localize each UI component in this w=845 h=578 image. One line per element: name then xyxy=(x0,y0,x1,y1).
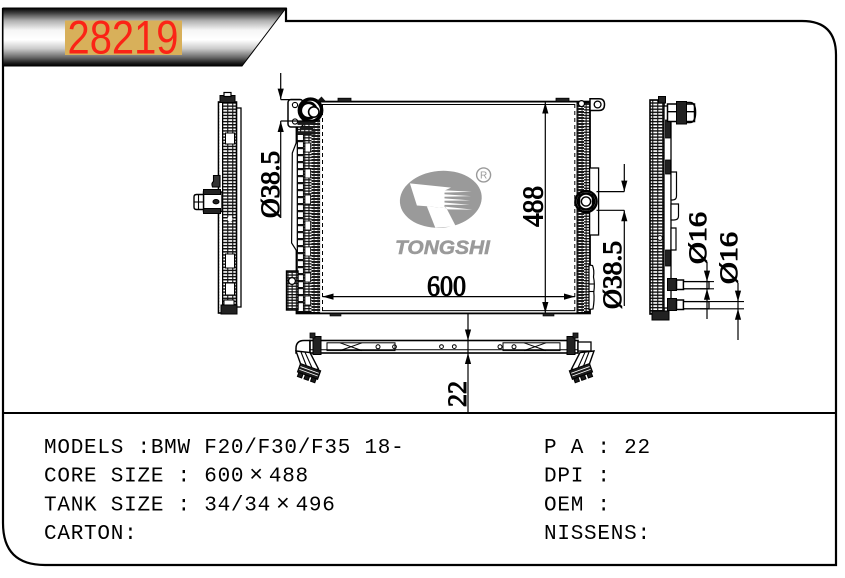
svg-text:NISSENS:: NISSENS: xyxy=(544,523,651,546)
svg-text:Ø16: Ø16 xyxy=(716,232,743,284)
svg-text:22: 22 xyxy=(443,381,472,407)
svg-text:TONGSHI: TONGSHI xyxy=(395,238,491,259)
svg-text:Ø38.5: Ø38.5 xyxy=(256,151,285,218)
svg-text:600: 600 xyxy=(427,271,466,303)
svg-text:28219: 28219 xyxy=(68,12,179,65)
svg-text:OEM :: OEM : xyxy=(544,494,611,517)
svg-text:Ø16: Ø16 xyxy=(685,212,712,264)
svg-text:CORE SIZE : 600×488: CORE SIZE : 600×488 xyxy=(44,463,309,489)
svg-text:P A : 22: P A : 22 xyxy=(544,437,651,460)
svg-text:488: 488 xyxy=(518,186,550,227)
svg-text:Ø38.5: Ø38.5 xyxy=(598,241,627,309)
svg-text:DPI :: DPI : xyxy=(544,466,611,489)
svg-text:R: R xyxy=(480,171,487,182)
svg-text:MODELS :BMW F20/F30/F35 18-: MODELS :BMW F20/F30/F35 18- xyxy=(44,437,405,460)
svg-text:CARTON:: CARTON: xyxy=(44,523,137,546)
